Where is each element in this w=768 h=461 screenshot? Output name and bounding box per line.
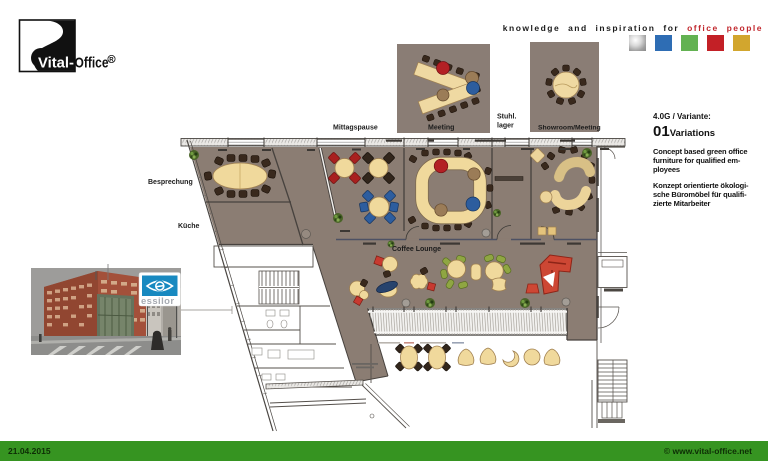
svg-text:Coffee Lounge: Coffee Lounge [392, 246, 441, 253]
svg-text:Showroom/Meeting: Showroom/Meeting [538, 125, 601, 132]
svg-text:Besprechung: Besprechung [148, 179, 193, 186]
svg-text:essilor: essilor [141, 296, 174, 307]
svg-text:Küche: Küche [178, 223, 200, 230]
svg-text:Meeting: Meeting [428, 125, 454, 132]
svg-text:Mittagspause: Mittagspause [333, 125, 378, 132]
svg-text:lager: lager [497, 123, 514, 130]
svg-text:Stuhl.: Stuhl. [497, 114, 516, 121]
